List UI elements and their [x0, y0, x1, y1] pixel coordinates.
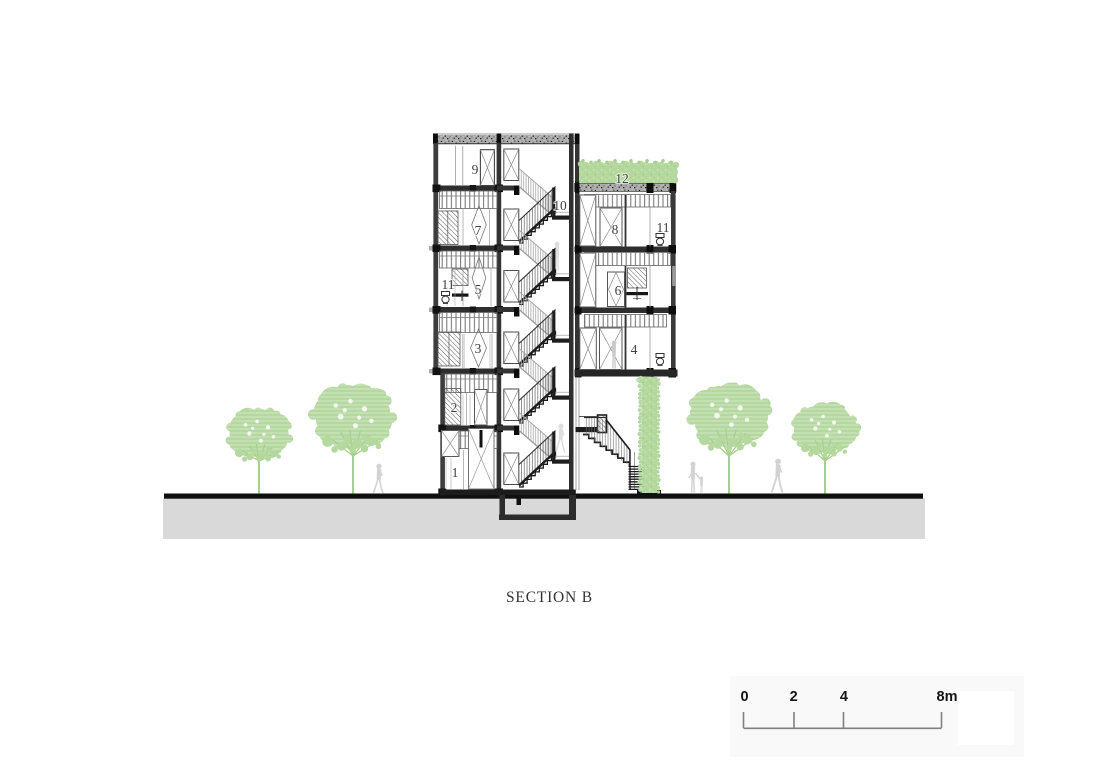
svg-text:8m: 8m: [937, 689, 958, 705]
svg-text:2: 2: [790, 689, 798, 705]
svg-text:12: 12: [615, 171, 629, 186]
svg-text:11: 11: [442, 277, 455, 292]
svg-text:6: 6: [615, 283, 622, 298]
svg-text:SECTION B: SECTION B: [506, 589, 593, 606]
svg-text:4: 4: [631, 342, 638, 357]
svg-text:11: 11: [657, 220, 670, 235]
svg-text:9: 9: [472, 162, 479, 177]
svg-text:0: 0: [741, 689, 749, 705]
svg-text:4: 4: [840, 689, 848, 705]
svg-text:8: 8: [612, 222, 619, 237]
svg-text:1: 1: [452, 465, 459, 480]
svg-text:2: 2: [451, 400, 458, 415]
svg-text:7: 7: [475, 223, 482, 238]
svg-text:10: 10: [553, 198, 567, 213]
svg-text:5: 5: [475, 282, 482, 297]
svg-text:3: 3: [475, 341, 482, 356]
